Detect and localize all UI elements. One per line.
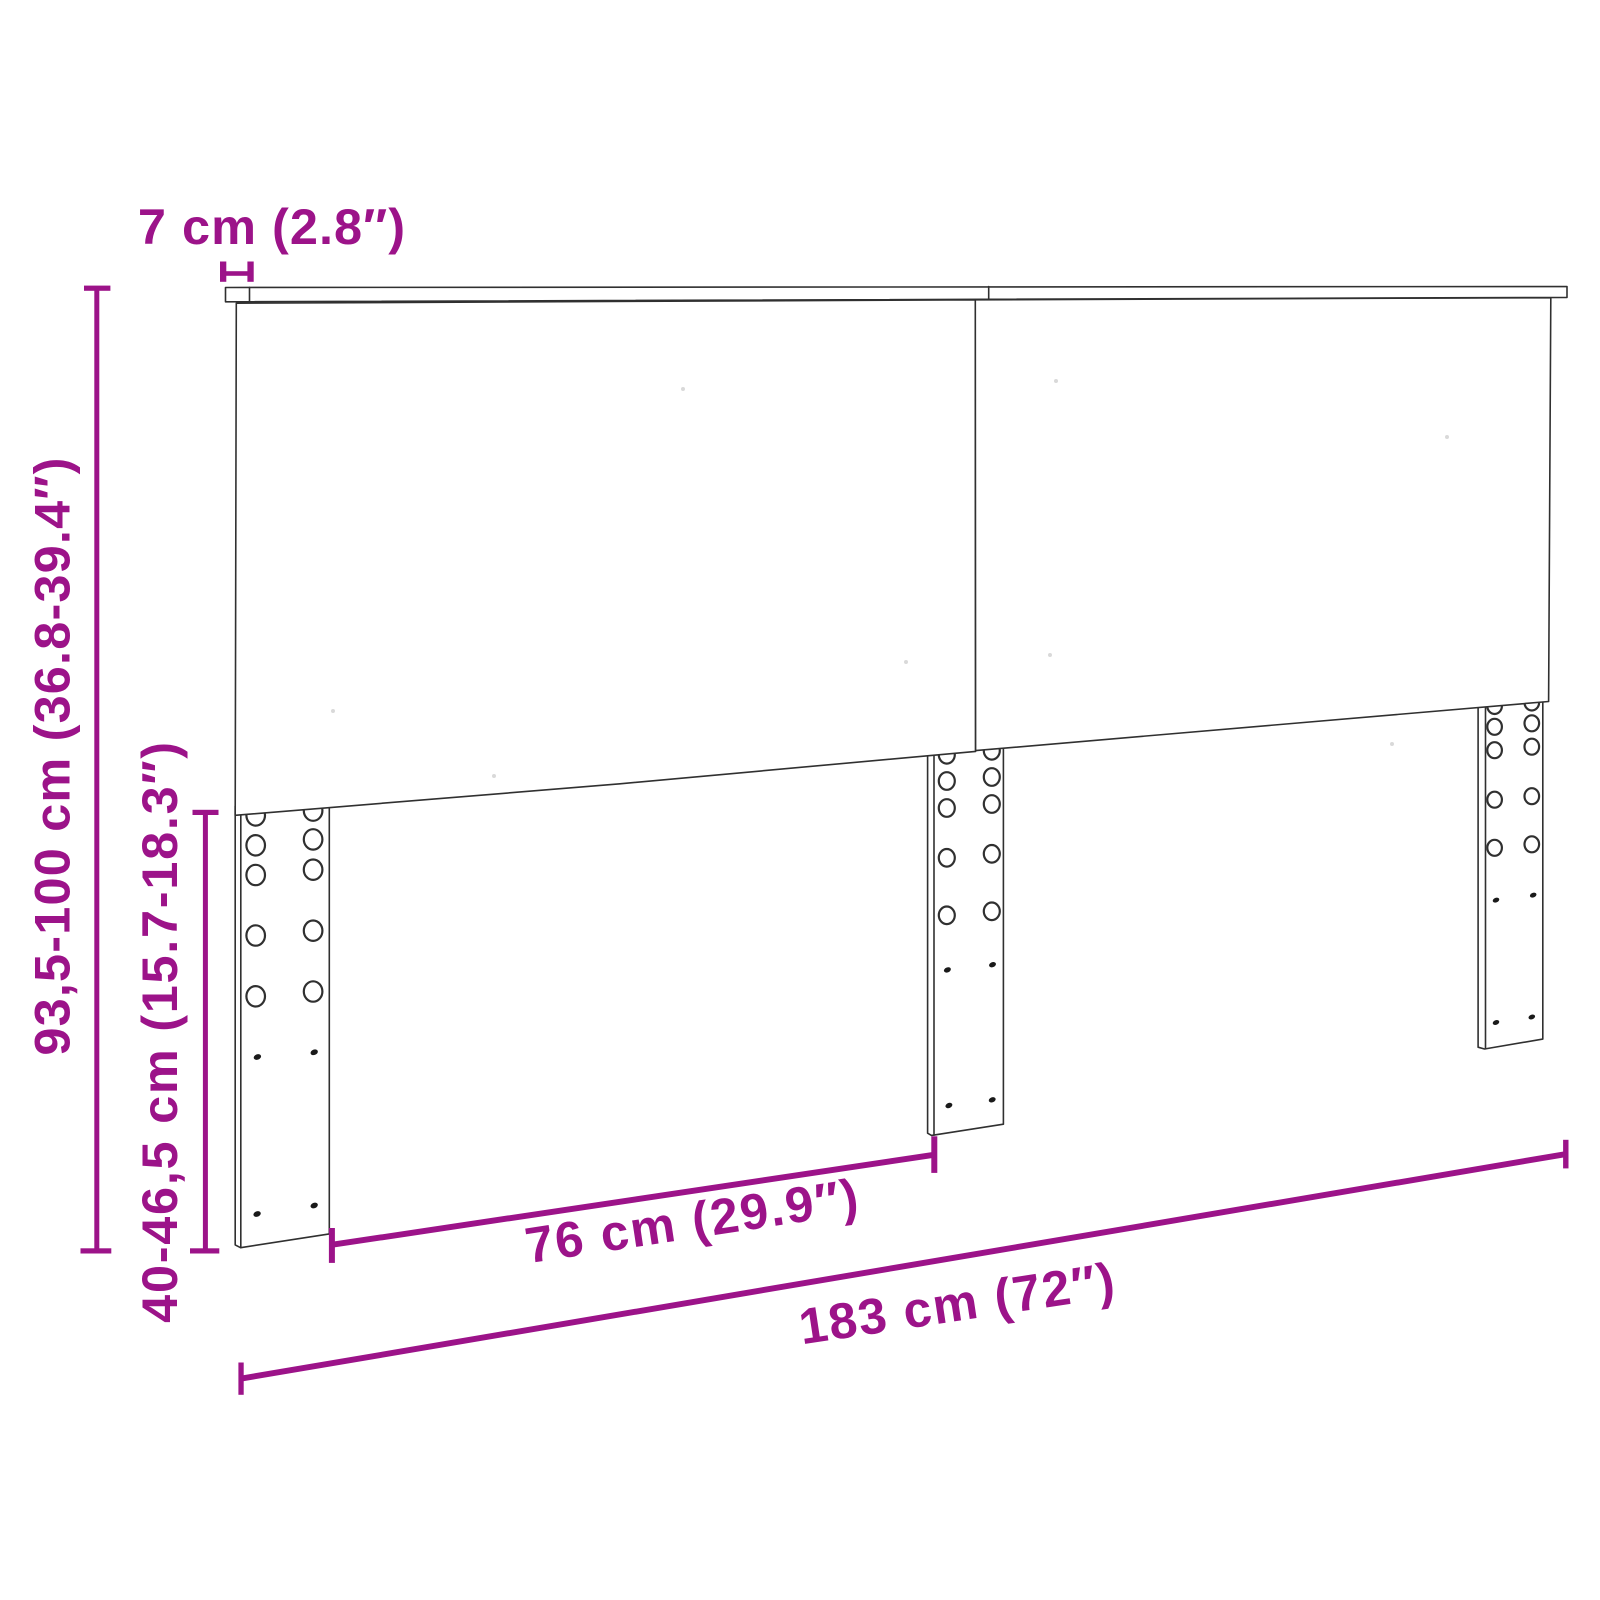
svg-text:93,5-100 cm (36.8-39.4″): 93,5-100 cm (36.8-39.4″) <box>24 456 81 1055</box>
svg-text:7 cm (2.8″): 7 cm (2.8″) <box>138 198 406 255</box>
svg-text:40-46,5 cm (15.7-18.3″): 40-46,5 cm (15.7-18.3″) <box>131 740 188 1323</box>
